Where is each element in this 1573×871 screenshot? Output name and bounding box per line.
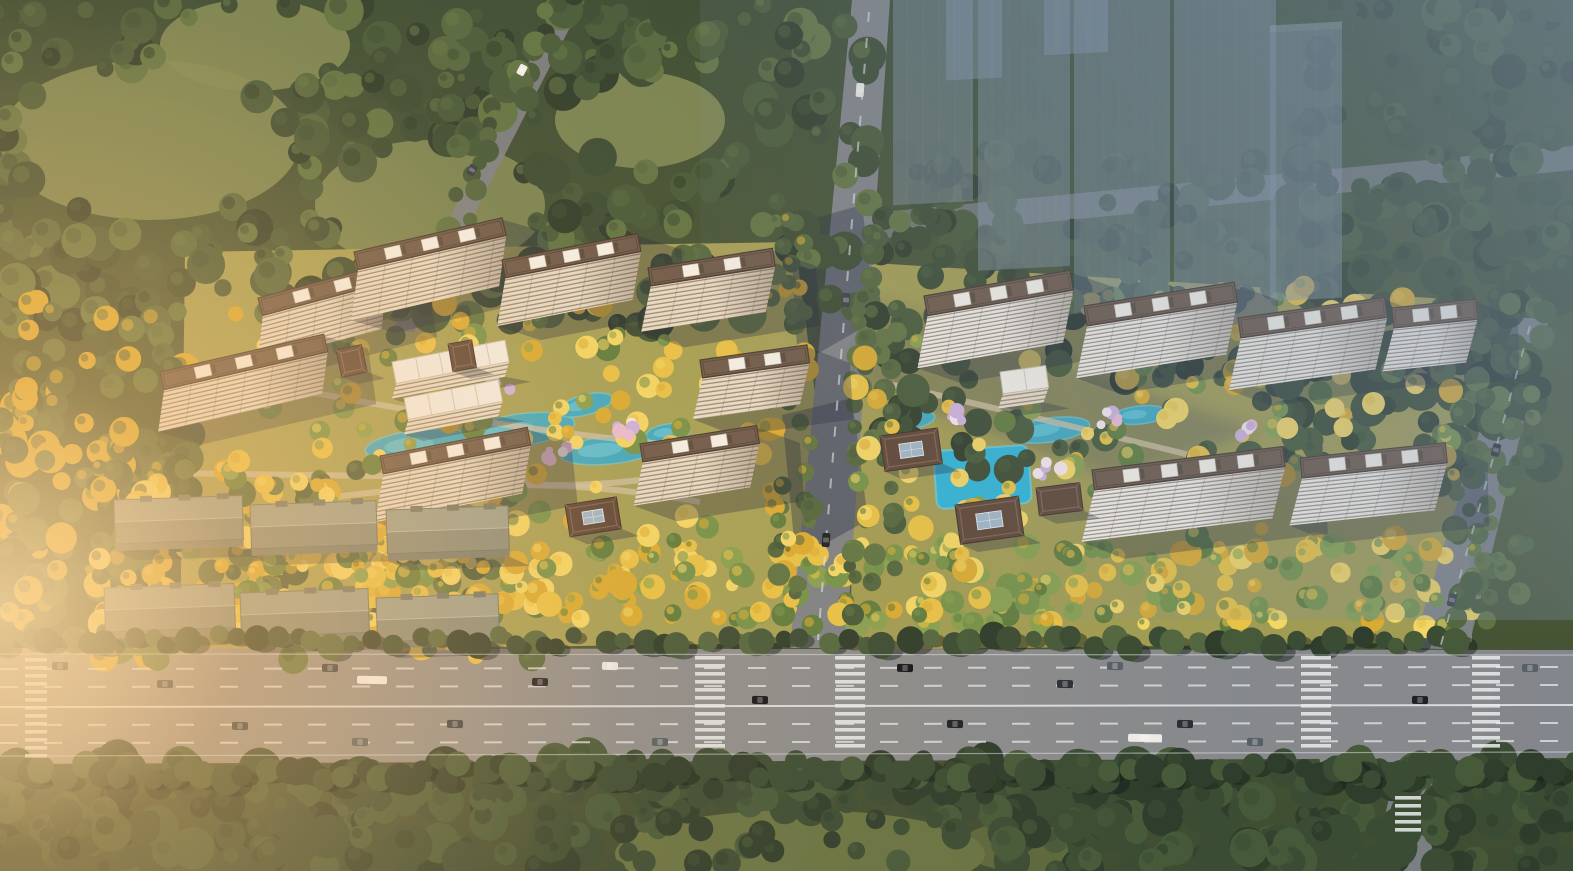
aerial-rendering bbox=[0, 0, 1573, 871]
sun-glow-core bbox=[0, 300, 500, 871]
rendering-canvas bbox=[0, 0, 1573, 871]
